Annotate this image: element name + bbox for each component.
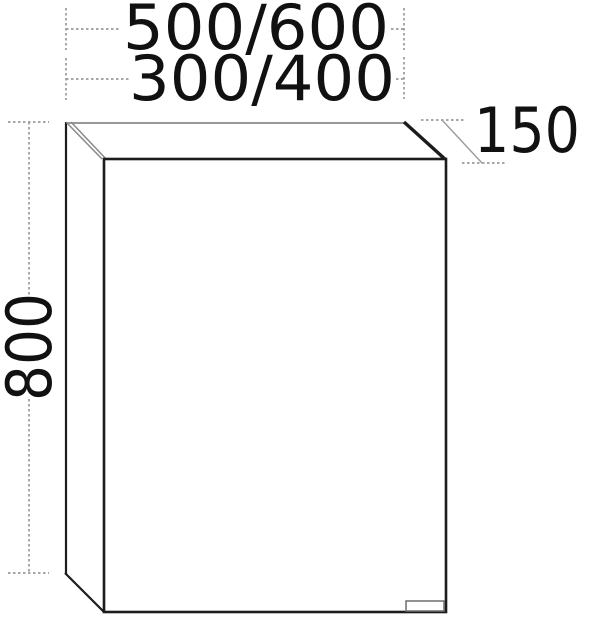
height-dimension: 800 (0, 122, 66, 573)
cabinet-front-face (104, 159, 446, 612)
depth-label: 150 (474, 94, 580, 167)
cabinet-bottom-left-diagonal (65, 573, 104, 612)
cabinet-top-left-diagonal-inner (71, 122, 107, 160)
technical-drawing: 500/600 300/400 800 150 (0, 0, 608, 618)
cabinet-top-left-diagonal-outer (66, 122, 102, 159)
width-row2-label: 300/400 (129, 42, 395, 115)
cabinet-top-right-diagonal (404, 122, 446, 160)
drawing-svg: 500/600 300/400 800 150 (0, 0, 608, 618)
height-label: 800 (0, 293, 66, 401)
depth-dimension: 150 (421, 94, 580, 167)
cabinet-body (65, 122, 446, 612)
door-handle (406, 601, 444, 611)
width-dimension-row2: 300/400 (66, 42, 404, 115)
